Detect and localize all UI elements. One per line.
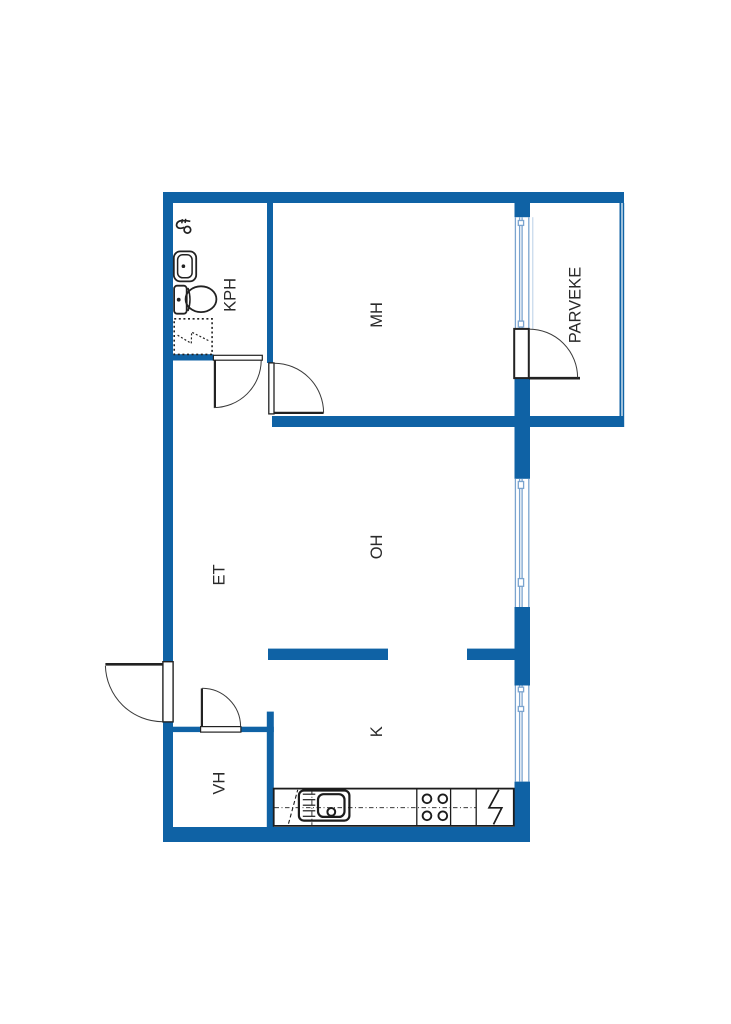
svg-text:K: K [368, 726, 386, 737]
svg-text:PARVEKE: PARVEKE [567, 267, 585, 343]
svg-text:KPH: KPH [221, 278, 239, 312]
svg-text:ET: ET [211, 564, 229, 585]
svg-text:MH: MH [368, 302, 386, 328]
svg-text:OH: OH [368, 535, 386, 560]
svg-text:VH: VH [210, 772, 228, 795]
